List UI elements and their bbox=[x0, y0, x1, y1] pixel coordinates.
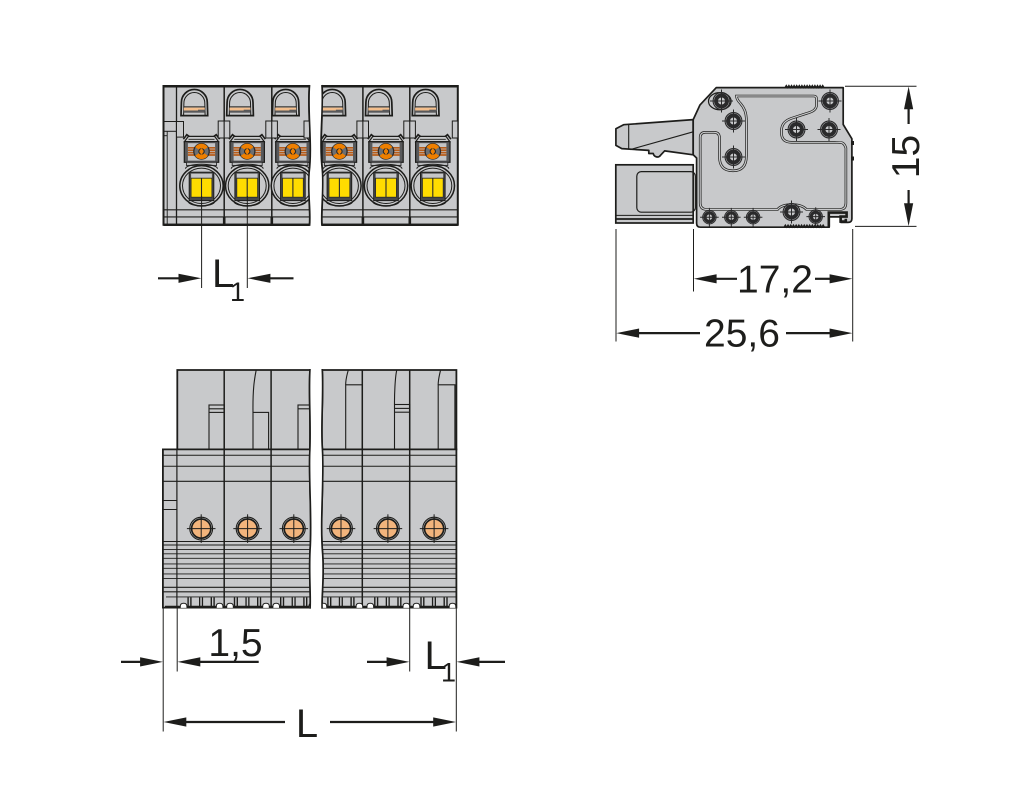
svg-text:1: 1 bbox=[441, 658, 456, 688]
svg-text:15: 15 bbox=[885, 135, 928, 178]
svg-text:17,2: 17,2 bbox=[737, 259, 813, 302]
svg-text:L: L bbox=[296, 702, 318, 746]
svg-text:1,5: 1,5 bbox=[208, 622, 262, 665]
svg-text:1: 1 bbox=[230, 277, 245, 307]
svg-text:25,6: 25,6 bbox=[704, 313, 780, 356]
